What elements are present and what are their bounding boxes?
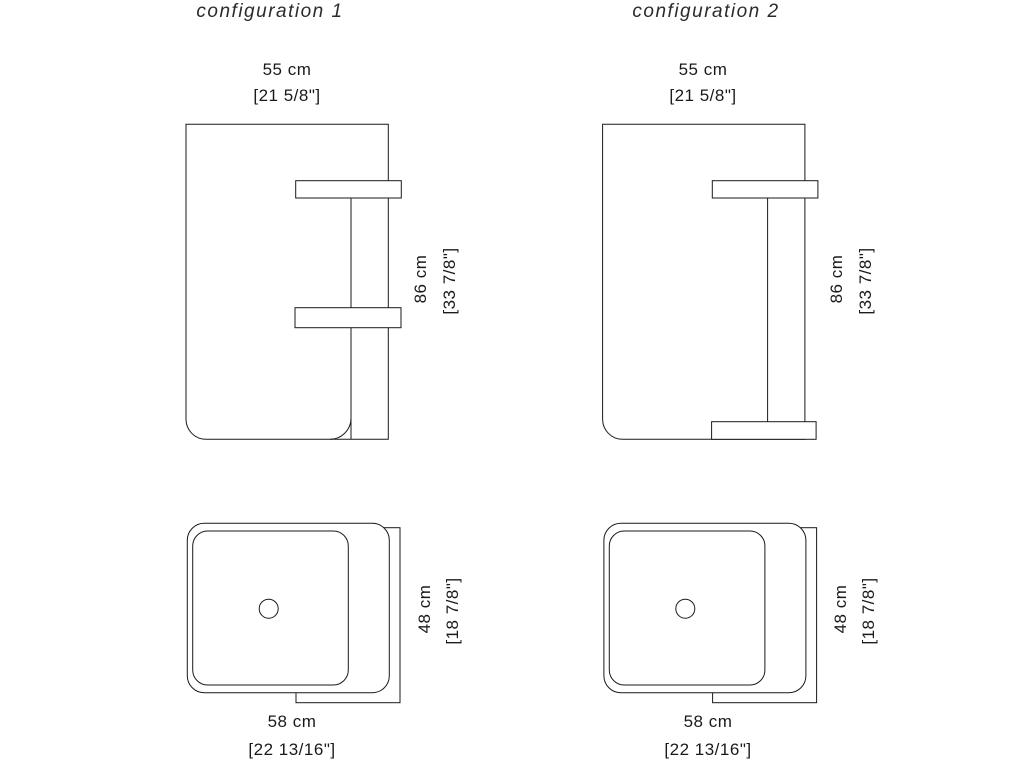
config2-top-depth-cm-label: 48 cm <box>831 585 851 634</box>
upper-shelf <box>296 181 402 198</box>
config2-front-height-in-label: [33 7/8"] <box>856 247 876 314</box>
config2-front-width-cm-label: 55 cm <box>679 60 728 80</box>
config1-top-depth-cm-label: 48 cm <box>415 585 435 634</box>
center-hole <box>259 599 278 618</box>
foot-bar <box>712 422 817 440</box>
config1-title: configuration 1 <box>196 1 343 23</box>
drawing-linework <box>0 0 1017 763</box>
center-hole <box>676 599 695 618</box>
config1-top-width-cm-label: 58 cm <box>268 712 317 732</box>
config1-front-width-in-label: [21 5/8"] <box>253 86 320 106</box>
dimension-drawing-sheet: configuration 1 55 cm [21 5/8"] 86 cm [3… <box>0 0 1017 763</box>
config2-top-depth-in-label: [18 7/8"] <box>859 577 879 644</box>
config2-top-view-drawing <box>604 523 817 702</box>
config2-front-view-drawing <box>603 124 818 439</box>
config2-top-width-in-label: [22 13/16"] <box>664 740 751 760</box>
config1-front-height-cm-label: 86 cm <box>411 255 431 304</box>
config2-front-height-cm-label: 86 cm <box>827 255 847 304</box>
lower-shelf <box>295 308 401 328</box>
panel-outline <box>603 124 805 439</box>
config1-front-width-cm-label: 55 cm <box>263 60 312 80</box>
panel-outline <box>186 124 388 439</box>
config2-title: configuration 2 <box>632 1 779 23</box>
config1-top-depth-in-label: [18 7/8"] <box>443 577 463 644</box>
config1-front-view-drawing <box>186 124 401 439</box>
config1-front-height-in-label: [33 7/8"] <box>440 247 460 314</box>
config2-front-width-in-label: [21 5/8"] <box>669 86 736 106</box>
upper-shelf <box>712 181 818 198</box>
config2-top-width-cm-label: 58 cm <box>684 712 733 732</box>
config1-top-width-in-label: [22 13/16"] <box>248 740 335 760</box>
config1-top-view-drawing <box>187 523 400 702</box>
